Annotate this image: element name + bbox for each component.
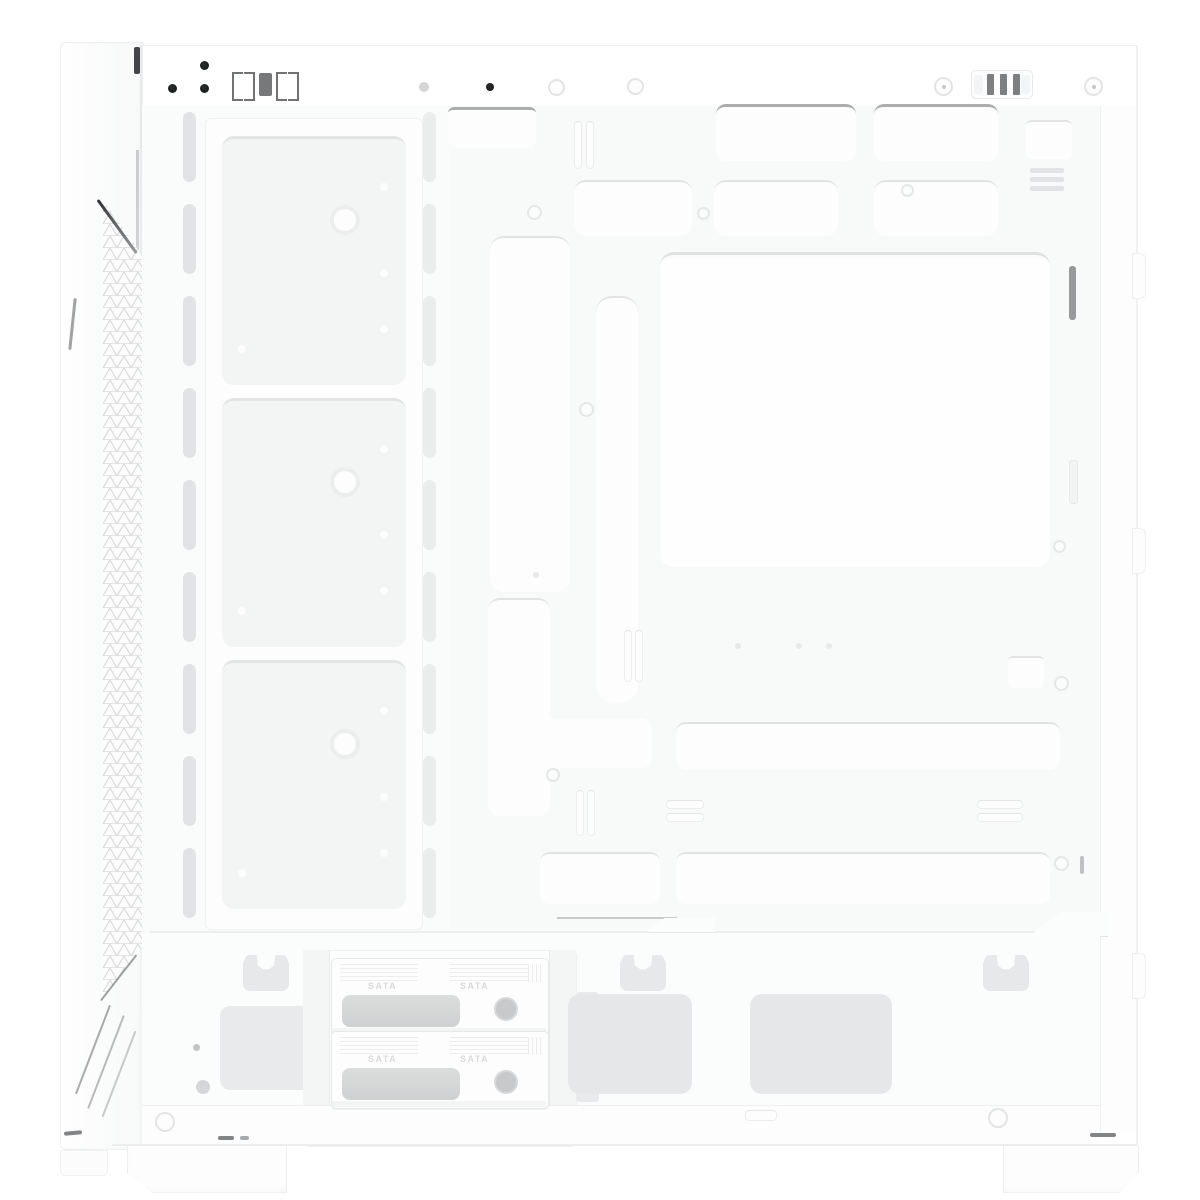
fan-screw-hole <box>238 869 246 877</box>
fan-screw-hole <box>380 849 388 857</box>
case-foot <box>127 1146 287 1193</box>
fan-rail-slot <box>423 572 436 642</box>
screw-ring <box>548 79 565 96</box>
standoff-hole <box>796 643 802 649</box>
fan-rail-slot <box>183 204 196 274</box>
fan-rail-slot <box>423 848 436 918</box>
tray-ridge <box>532 1037 533 1055</box>
tray-ridge <box>450 1049 528 1050</box>
bottom-clip-mark <box>1090 1133 1116 1137</box>
case-foot <box>1003 1146 1139 1193</box>
tray-ridge <box>450 1037 528 1038</box>
screw-ring <box>155 1112 175 1132</box>
bottom-vent-pad <box>220 1006 310 1090</box>
front-mesh-vent <box>103 200 144 1000</box>
cable-hole <box>196 1080 210 1094</box>
cable-grommet-cutout <box>714 180 838 236</box>
fan-rail-slot <box>183 664 196 734</box>
fan-screw-hole <box>380 587 388 595</box>
fan-rail-slot <box>183 388 196 458</box>
standoff-hole <box>533 572 539 578</box>
fan-rail-slot <box>423 480 436 550</box>
sata-label: SATA <box>368 1054 397 1064</box>
rear-vent-slot <box>1080 856 1084 874</box>
screw-hole <box>200 61 209 70</box>
fan-screw-hole <box>380 707 388 715</box>
cable-tie-slot <box>586 121 594 169</box>
tray-ridge <box>340 1045 418 1046</box>
tray-ridge <box>528 964 529 982</box>
fan-hub-ring <box>330 467 360 497</box>
rear-panel-tab <box>1132 528 1146 574</box>
fan-screw-hole <box>380 531 388 539</box>
standoff-hole <box>901 184 914 197</box>
cable-tie-slot <box>574 121 582 169</box>
tray-ridge <box>450 1045 528 1046</box>
clip-slot <box>1000 74 1007 95</box>
fan-rail-slot <box>423 204 436 274</box>
tray-release-button <box>494 997 518 1021</box>
fan-rail-slot <box>183 572 196 642</box>
tray-ridge <box>340 968 418 969</box>
sata-label: SATA <box>460 981 489 991</box>
clip-nub <box>974 75 983 94</box>
strap-slot <box>977 800 1023 809</box>
fan-rail-slot <box>183 848 196 918</box>
tray-ridge <box>450 968 528 969</box>
top-recess-cutout <box>448 107 536 148</box>
clip-slot <box>1013 74 1020 95</box>
screw-hole <box>193 1044 200 1051</box>
standoff-hole <box>697 207 710 220</box>
bottom-vent-pad <box>568 994 692 1094</box>
triangle-mesh-pattern <box>103 200 144 1000</box>
vent-slat <box>1030 186 1064 191</box>
top-cable-cutout <box>874 104 998 161</box>
standoff-hole <box>735 643 741 649</box>
strap-slot <box>666 813 704 822</box>
fan-mount-panel <box>222 398 406 647</box>
tray-rubber-pad <box>342 1068 460 1100</box>
bottom-slot <box>745 1110 777 1121</box>
top-cable-cutout <box>716 104 856 161</box>
fan-rail-slot <box>423 296 436 366</box>
bottom-cable-cutout <box>540 852 660 904</box>
cable-grommet-cutout <box>874 180 998 236</box>
standoff-hole <box>579 402 594 417</box>
fan-rail-slot <box>423 112 436 182</box>
tray-ridge <box>536 964 537 982</box>
fan-rail-slot <box>423 664 436 734</box>
tray-ridge <box>540 964 541 982</box>
cable-tie-slot <box>624 630 632 682</box>
tray-ridge <box>536 1037 537 1055</box>
cable-tie-slot <box>576 790 584 836</box>
cpu-cooler-cutout <box>660 252 1050 567</box>
front-panel-seam-cap <box>134 47 140 74</box>
tray-ridge <box>340 1041 418 1042</box>
bracket-glyph <box>232 72 243 101</box>
fan-screw-hole <box>238 607 246 615</box>
screw-ring <box>1084 77 1103 96</box>
bracket-glyph <box>288 72 299 101</box>
fan-screw-hole <box>380 445 388 453</box>
fan-screw-hole <box>380 269 388 277</box>
tray-ridge <box>340 976 418 977</box>
vent-slat <box>1030 177 1064 182</box>
cable-tie-slot <box>635 630 643 682</box>
tray-release-button <box>494 1070 518 1094</box>
fan-screw-hole <box>380 793 388 801</box>
fan-screw-hole <box>238 345 246 353</box>
tray-ridge <box>528 1037 529 1055</box>
bracket-glyph <box>276 72 287 101</box>
fan-rail-slot <box>183 112 196 182</box>
screw-hole <box>168 84 177 93</box>
tray-ridge <box>450 972 528 973</box>
tray-ridge <box>450 976 528 977</box>
clip-nub <box>1021 75 1030 94</box>
bottom-clip-mark <box>218 1136 234 1140</box>
standoff-hole <box>826 643 832 649</box>
rear-panel-tab <box>1132 253 1146 299</box>
bracket-glyph <box>244 72 255 101</box>
screw-hole <box>419 82 429 92</box>
sata-label: SATA <box>460 1054 489 1064</box>
tray-ridge <box>450 964 528 965</box>
standoff-hole <box>1054 856 1069 871</box>
pc-case-product-photo: SATASATASATASATA <box>0 0 1200 1200</box>
clip-slot <box>987 74 994 95</box>
top-panel-clip-cutout-left <box>232 72 298 97</box>
screw-hole <box>200 84 209 93</box>
fan-hub-ring <box>330 205 360 235</box>
fan-screw-hole <box>380 325 388 333</box>
fan-mount-panel <box>222 660 406 909</box>
tray-lip <box>332 1101 546 1107</box>
shelf-shadow-line <box>557 917 677 919</box>
bottom-vent-pad <box>750 994 892 1094</box>
cable-grommet-cutout <box>574 180 692 236</box>
strap-slot <box>977 813 1023 822</box>
fan-hub-ring <box>330 729 360 759</box>
tray-ridge <box>540 1037 541 1055</box>
top-panel-clip-cutout-right <box>971 70 1033 99</box>
tray-ridge <box>340 1037 418 1038</box>
sata-label: SATA <box>368 981 397 991</box>
rear-vent-slot <box>1069 460 1078 504</box>
drive-tray: SATASATA <box>331 1031 549 1109</box>
tray-ridge <box>340 964 418 965</box>
tray-ridge <box>340 1049 418 1050</box>
lower-cable-cutout-arm <box>488 718 652 768</box>
front-cable-cutout <box>490 236 570 592</box>
standoff-hole <box>1054 676 1069 691</box>
bottom-rail <box>142 1105 1100 1146</box>
fan-rail-slot <box>423 388 436 458</box>
standoff-hole <box>546 768 560 782</box>
vent-slat <box>1030 168 1064 173</box>
screw-ring <box>627 78 644 95</box>
small-square-cutout <box>1026 120 1072 159</box>
screw-ring <box>934 77 953 96</box>
tray-rubber-pad <box>342 995 460 1027</box>
psu-shroud-top-cutout <box>676 722 1060 770</box>
bottom-clip-mark <box>240 1136 249 1140</box>
screw-ring <box>988 1108 1008 1128</box>
rear-vent-slot <box>1069 266 1076 320</box>
fan-rail-slot <box>423 756 436 826</box>
strap-slot <box>666 800 704 809</box>
case-bottom-edge <box>112 1144 1138 1146</box>
tray-ridge <box>532 964 533 982</box>
bottom-cable-cutout <box>676 852 1050 904</box>
lower-cable-cutout <box>488 598 550 816</box>
clip-slot <box>259 73 272 96</box>
small-square-cutout <box>1008 656 1044 688</box>
fan-rail-slot <box>183 480 196 550</box>
tray-ridge <box>450 1041 528 1042</box>
fan-rail-slot <box>183 756 196 826</box>
tray-ridge <box>340 972 418 973</box>
fan-rail-slot <box>183 296 196 366</box>
standoff-hole <box>527 205 542 220</box>
rear-screw-hole <box>1053 540 1066 553</box>
screw-hole <box>486 83 494 91</box>
drive-tray: SATASATA <box>331 958 549 1036</box>
cable-tie-slot <box>587 790 595 836</box>
rear-panel-tab <box>1132 953 1146 999</box>
fan-mount-panel <box>222 136 406 385</box>
front-panel-bottom-tab <box>60 1150 108 1176</box>
fan-screw-hole <box>380 183 388 191</box>
